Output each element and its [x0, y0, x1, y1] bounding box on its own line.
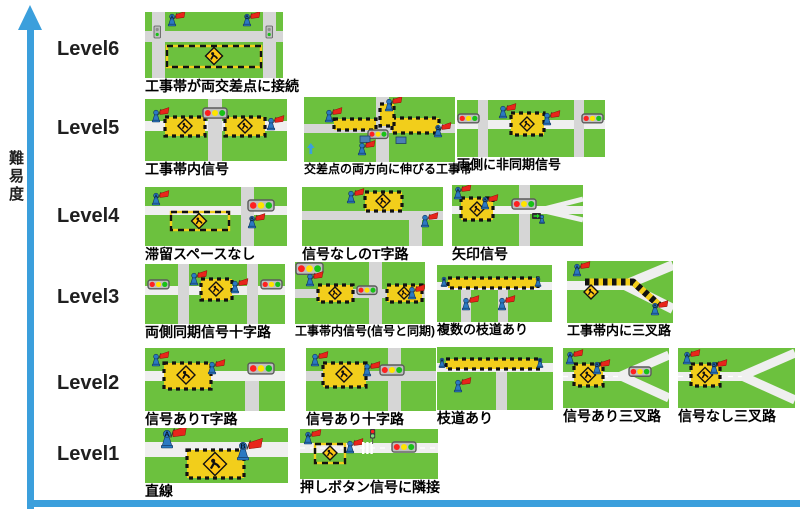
scenario-illustration: B — [304, 97, 455, 162]
scenario-caption: 信号あり三叉路 — [563, 409, 669, 424]
svg-text:A: A — [306, 432, 310, 438]
scenario-caption: 直線 — [145, 484, 288, 499]
scenario-caption: 枝道あり — [437, 411, 553, 426]
level-label-level2: Level2 — [57, 372, 119, 395]
scenario-caption: 工事帯が両交差点に接続 — [145, 79, 299, 94]
scenario-tile-l3-2: 工事帯内信号(信号と同期) — [295, 262, 435, 338]
scenario-illustration — [145, 348, 285, 411]
scenario-caption: 工事帯内信号 — [145, 162, 287, 177]
scenario-tile-l5-1: 工事帯内信号 — [145, 99, 287, 177]
scenario-illustration: AB — [567, 261, 673, 323]
svg-text:B: B — [539, 358, 542, 362]
svg-text:B: B — [483, 197, 487, 203]
difficulty-level-diagram: 難易度 Level6Level5Level4Level3Level2Level1… — [0, 0, 800, 529]
scenario-tile-l2-2: 信号あり十字路 — [306, 348, 436, 427]
scenario-illustration: AB — [452, 185, 583, 246]
scenario-illustration: AB — [437, 265, 552, 322]
scenario-illustration: AB — [145, 428, 288, 483]
scenario-illustration: AB — [437, 347, 553, 410]
svg-text:B: B — [712, 362, 716, 368]
scenario-caption: 押しボタン信号に隣接 — [300, 480, 440, 495]
scenario-illustration — [295, 262, 425, 324]
svg-text:A: A — [575, 264, 579, 270]
scenario-illustration: AB — [563, 348, 669, 408]
level-label-level3: Level3 — [57, 286, 119, 309]
scenario-caption: 滞留スペースなし — [145, 247, 287, 262]
scenario-caption: 信号なし三叉路 — [678, 409, 795, 424]
scenario-caption: 信号なしのT字路 — [302, 247, 443, 262]
scenario-tile-l5-2: B交差点の両方向に伸びる工事帯 — [304, 97, 472, 176]
scenario-illustration: AB — [145, 12, 283, 78]
scenario-tile-l3-1: 両側同期信号十字路 — [145, 264, 285, 340]
scenario-caption: 信号あり十字路 — [306, 412, 436, 427]
svg-text:A: A — [568, 352, 572, 358]
level-label-level5: Level5 — [57, 117, 119, 140]
svg-text:A: A — [443, 277, 446, 281]
svg-text:B: B — [240, 441, 245, 450]
scenario-illustration — [306, 348, 436, 411]
scenario-tile-l3-4: AB工事帯内に三叉路 — [567, 261, 673, 338]
scenario-tile-l5-3: 両側に非同期信号 — [457, 100, 605, 172]
scenario-tile-l2-5: AB信号なし三叉路 — [678, 348, 795, 424]
level-label-level1: Level1 — [57, 443, 119, 466]
scenario-illustration — [302, 187, 443, 246]
svg-text:A: A — [164, 429, 169, 438]
y-axis-arrowhead-icon — [18, 5, 42, 30]
level-label-level4: Level4 — [57, 205, 119, 228]
svg-text:B: B — [436, 125, 440, 131]
svg-text:B: B — [537, 277, 540, 281]
x-axis-line — [27, 500, 800, 507]
scenario-caption: 両側に非同期信号 — [457, 158, 605, 172]
scenario-illustration — [457, 100, 605, 157]
scenario-tile-l6-1: AB工事帯が両交差点に接続 — [145, 12, 299, 94]
scenario-caption: 信号ありT字路 — [145, 412, 285, 427]
scenario-caption: 複数の枝道あり — [437, 323, 552, 337]
svg-text:A: A — [456, 187, 460, 193]
svg-text:B: B — [595, 362, 599, 368]
y-axis-label: 難易度 — [5, 150, 26, 204]
scenario-tile-l2-1: 信号ありT字路 — [145, 348, 285, 427]
svg-text:A: A — [170, 14, 174, 20]
svg-text:A: A — [441, 358, 444, 362]
scenario-caption: 工事帯内に三叉路 — [567, 324, 673, 338]
level-label-level6: Level6 — [57, 38, 119, 61]
scenario-tile-l1-2: A押しボタン信号に隣接 — [300, 429, 440, 495]
scenario-tile-l4-3: AB矢印信号 — [452, 185, 583, 262]
scenario-tile-l4-2: 信号なしのT字路 — [302, 187, 443, 262]
scenario-illustration: AB — [678, 348, 795, 408]
svg-text:B: B — [250, 216, 254, 222]
scenario-caption: 工事帯内信号(信号と同期) — [295, 325, 435, 338]
y-axis-line — [27, 28, 34, 509]
scenario-tile-l1-1: AB直線 — [145, 428, 288, 499]
scenario-tile-l4-1: AB滞留スペースなし — [145, 187, 287, 262]
scenario-illustration: A — [300, 429, 438, 479]
scenario-tile-l2-4: AB信号あり三叉路 — [563, 348, 669, 424]
svg-text:B: B — [245, 14, 249, 20]
scenario-caption: 両側同期信号十字路 — [145, 325, 285, 340]
svg-text:A: A — [685, 352, 689, 358]
scenario-illustration — [145, 264, 285, 324]
scenario-caption: 矢印信号 — [452, 247, 583, 262]
scenario-tile-l3-3: AB複数の枝道あり — [437, 265, 552, 337]
svg-text:B: B — [653, 303, 657, 309]
scenario-illustration: AB — [145, 187, 287, 246]
scenario-illustration — [145, 99, 287, 161]
scenario-tile-l2-3: AB枝道あり — [437, 347, 553, 426]
scenario-caption: 交差点の両方向に伸びる工事帯 — [304, 163, 472, 176]
svg-text:A: A — [154, 193, 158, 199]
